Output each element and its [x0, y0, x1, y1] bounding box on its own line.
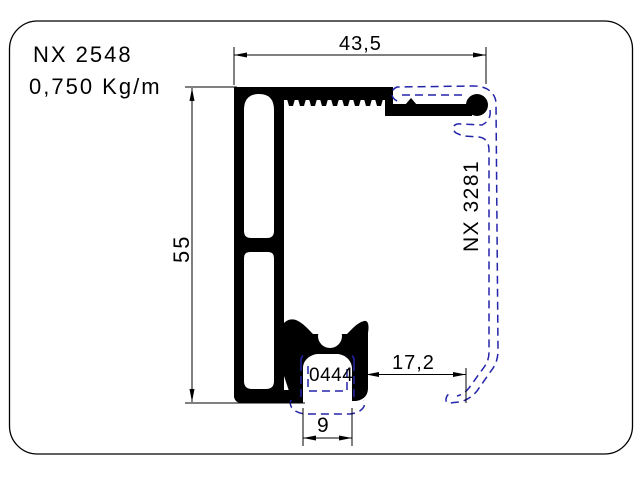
technical-drawing: 43,5 55 17,2 9 NX 2548 0,750 Kg/m NX 328…	[0, 0, 640, 480]
profile-valley-notch	[318, 324, 342, 348]
profile-slot-upper	[244, 94, 274, 238]
drawing-canvas: 43,5 55 17,2 9 NX 2548 0,750 Kg/m NX 328…	[0, 0, 640, 480]
profile-weight-label: 0,750 Kg/m	[29, 74, 162, 99]
dim-43-value: 43,5	[339, 33, 382, 55]
dim-55-value: 55	[169, 235, 194, 263]
profile-end-blob	[466, 94, 488, 116]
profile-lower-bar	[390, 104, 472, 116]
drawing-background	[0, 0, 640, 480]
dim-9-value: 9	[317, 414, 330, 437]
profile-slot-lower	[244, 252, 274, 389]
gasket-code-label: 0444	[309, 365, 353, 386]
dim-17-value: 17,2	[392, 352, 435, 374]
profile-code-label: NX 2548	[33, 42, 133, 67]
mating-profile-label: NX 3281	[460, 160, 483, 252]
profile-teeth	[287, 99, 383, 106]
